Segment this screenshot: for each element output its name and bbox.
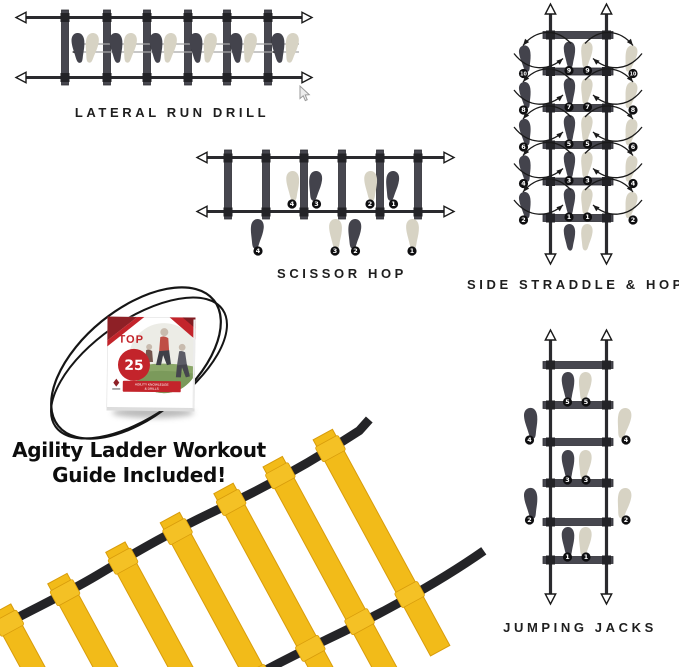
svg-text:2: 2	[624, 516, 628, 524]
ladder-end-arrow	[601, 4, 611, 14]
step-number-badge: 1	[581, 552, 590, 561]
footprint	[518, 81, 534, 109]
step-number-badge: 3	[581, 475, 590, 484]
step-number-badge: 3	[330, 246, 339, 255]
svg-text:4: 4	[631, 179, 636, 187]
ladder-rung	[313, 429, 450, 656]
footprint	[518, 45, 534, 73]
svg-text:1: 1	[567, 213, 571, 221]
svg-text:4: 4	[624, 436, 629, 444]
ladder-end-arrow	[302, 12, 312, 22]
ladder-end-arrow	[444, 206, 454, 216]
step-number-badge: 1	[407, 246, 416, 255]
svg-text:3: 3	[585, 176, 589, 184]
booklet-count: 25	[124, 358, 144, 374]
footprint	[563, 188, 576, 215]
step-number-badge: 4	[253, 246, 262, 255]
ladder-end-arrow	[16, 72, 26, 82]
ladder-end-arrow	[197, 152, 207, 162]
step-number-badge: 3	[312, 199, 321, 208]
footprint	[329, 219, 344, 250]
ladder-end-arrow	[601, 594, 611, 604]
step-number-badge: 8	[519, 105, 528, 114]
svg-text:5: 5	[584, 398, 588, 406]
ladder-end-arrow	[545, 594, 555, 604]
ladder-end-arrow	[197, 206, 207, 216]
footprint	[109, 32, 125, 63]
guide-included-caption: Agility Ladder Workout Guide Included!	[12, 438, 266, 488]
step-number-badge: 4	[525, 435, 534, 444]
footprint	[563, 78, 576, 105]
caption-line-1: Agility Ladder Workout	[12, 438, 266, 463]
svg-text:1: 1	[410, 247, 414, 255]
footprint	[241, 32, 257, 63]
booklet-top-label: TOP	[118, 334, 144, 346]
step-number-badge: 2	[525, 515, 534, 524]
step-number-badge: 4	[287, 199, 296, 208]
step-number-badge: 2	[365, 199, 374, 208]
footprint	[580, 188, 593, 215]
svg-text:2: 2	[353, 247, 357, 255]
footprint	[580, 41, 593, 68]
footprint	[563, 41, 576, 68]
label-scissor-hop: SCISSOR HOP	[277, 266, 407, 281]
svg-text:3: 3	[584, 476, 588, 484]
ladder-end-arrow	[16, 12, 26, 22]
footprint	[149, 32, 165, 63]
step-number-badge: 7	[583, 102, 592, 111]
svg-text:3: 3	[333, 247, 337, 255]
step-number-badge: 1	[583, 212, 592, 221]
step-number-badge: 5	[564, 139, 573, 148]
step-number-badge: 3	[583, 176, 592, 185]
svg-text:1: 1	[585, 213, 589, 221]
svg-text:7: 7	[567, 103, 571, 111]
footprint	[518, 191, 534, 219]
svg-text:4: 4	[290, 200, 295, 208]
side-straddle-hop-diagram: 9910107788556633441122	[514, 4, 642, 264]
step-number-badge: 5	[581, 397, 590, 406]
step-number-badge: 8	[628, 105, 637, 114]
footprint	[580, 78, 593, 105]
footprint	[229, 32, 245, 63]
svg-text:2: 2	[631, 216, 635, 224]
booklet-banner-line2: & DRILLS	[145, 387, 159, 391]
step-number-badge: 1	[389, 199, 398, 208]
footprint	[307, 170, 322, 201]
svg-text:2: 2	[368, 200, 372, 208]
step-number-badge: 7	[564, 102, 573, 111]
footprint	[249, 219, 264, 250]
footprint	[563, 115, 576, 142]
step-number-badge: 1	[563, 552, 572, 561]
footprint	[347, 219, 362, 250]
footprint	[201, 32, 217, 63]
footprint	[580, 115, 593, 142]
step-number-badge: 5	[563, 397, 572, 406]
footprint	[283, 32, 299, 63]
svg-text:3: 3	[567, 176, 571, 184]
footprint	[615, 487, 632, 519]
booklet-cover: TOP 25 AGILITY KNOWLEDGE & DRILLS	[107, 317, 196, 412]
svg-text:4: 4	[527, 436, 532, 444]
ladder-end-arrow	[545, 330, 555, 340]
caption-line-2: Guide Included!	[12, 463, 266, 488]
svg-text:1: 1	[584, 553, 588, 561]
ladder-end-arrow	[601, 254, 611, 264]
scissor-hop-diagram: 43214321	[197, 150, 454, 256]
step-number-badge: 4	[621, 435, 630, 444]
footprint	[523, 407, 540, 439]
step-number-badge: 9	[583, 66, 592, 75]
svg-text:5: 5	[565, 398, 569, 406]
label-lateral-run-drill: LATERAL RUN DRILL	[75, 105, 269, 120]
footprint	[286, 170, 301, 201]
footprint	[161, 32, 177, 63]
footprint	[580, 151, 593, 178]
footprint	[518, 155, 534, 183]
svg-text:3: 3	[565, 476, 569, 484]
diagram-canvas: 4321432199101077885566334411225544332211	[0, 0, 679, 667]
svg-text:9: 9	[585, 66, 590, 74]
footprint	[523, 487, 540, 519]
step-number-badge: 9	[564, 66, 573, 75]
svg-text:2: 2	[521, 216, 525, 224]
step-number-badge: 3	[563, 475, 572, 484]
footprint	[615, 407, 632, 439]
svg-text:1: 1	[391, 200, 395, 208]
footprint	[406, 219, 421, 250]
footprint	[580, 224, 593, 251]
jumping-jacks-diagram: 5544332211	[523, 330, 633, 604]
ladder-end-arrow	[545, 254, 555, 264]
label-jumping-jacks: JUMPING JACKS	[503, 620, 657, 635]
workout-guide-booklet: TOP 25 AGILITY KNOWLEDGE & DRILLS	[107, 317, 196, 412]
svg-text:2: 2	[527, 516, 531, 524]
svg-text:5: 5	[585, 140, 589, 148]
footprint	[384, 170, 399, 201]
svg-text:6: 6	[631, 143, 636, 151]
footprint	[518, 118, 534, 146]
label-side-straddle-hop: SIDE STRADDLE & HOP	[467, 277, 679, 292]
ladder-end-arrow	[601, 330, 611, 340]
svg-text:1: 1	[565, 553, 569, 561]
step-number-badge: 1	[564, 212, 573, 221]
footprint	[83, 32, 99, 63]
svg-text:3: 3	[314, 200, 318, 208]
footprint	[563, 224, 576, 251]
footprint	[271, 32, 287, 63]
agility-ladder-infographic: 4321432199101077885566334411225544332211…	[0, 0, 679, 667]
lateral-run-drill-diagram	[16, 10, 312, 85]
svg-text:7: 7	[585, 103, 589, 111]
mouse-cursor	[300, 86, 309, 101]
step-number-badge: 2	[351, 246, 360, 255]
footprint	[563, 151, 576, 178]
ladder-end-arrow	[302, 72, 312, 82]
step-number-badge: 2	[519, 215, 528, 224]
footprint	[121, 32, 137, 63]
svg-text:9: 9	[567, 66, 572, 74]
yellow-agility-ladder	[0, 393, 516, 667]
svg-text:5: 5	[567, 140, 571, 148]
step-number-badge: 2	[628, 215, 637, 224]
ladder-end-arrow	[545, 4, 555, 14]
footprint	[623, 45, 639, 73]
footprint	[71, 32, 87, 63]
step-number-badge: 3	[564, 176, 573, 185]
step-number-badge: 5	[583, 139, 592, 148]
ladder-end-arrow	[444, 152, 454, 162]
svg-text:8: 8	[631, 106, 636, 114]
step-number-badge: 2	[621, 515, 630, 524]
svg-text:4: 4	[256, 247, 261, 255]
